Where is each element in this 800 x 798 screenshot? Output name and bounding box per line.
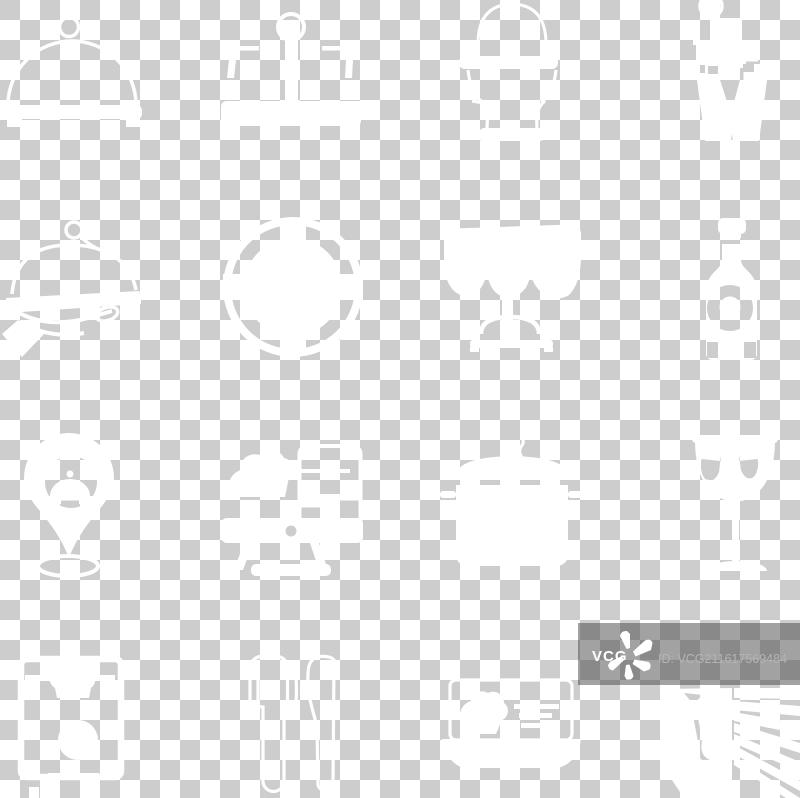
svg-text:ID: VCG211617569484: ID: VCG211617569484 bbox=[658, 652, 787, 666]
svg-text:VCG: VCG bbox=[592, 648, 628, 665]
